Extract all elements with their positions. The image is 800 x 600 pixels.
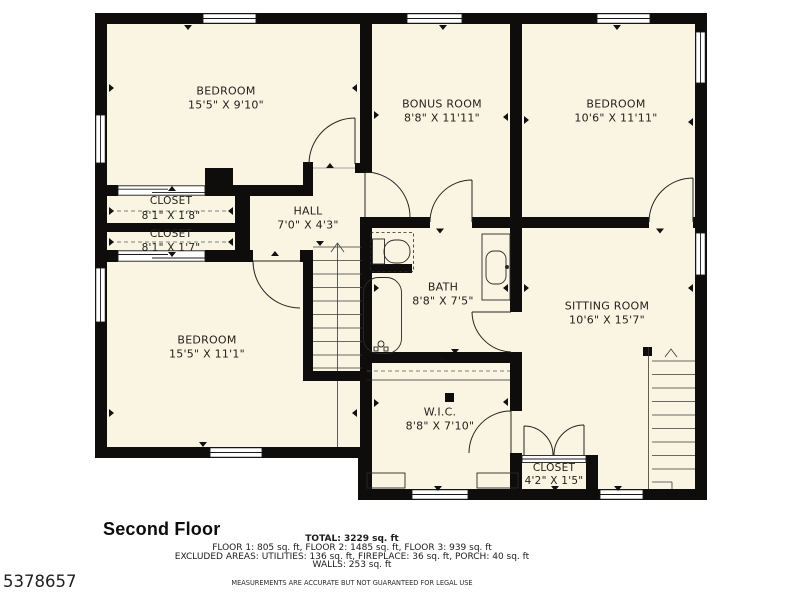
room-label-bedroom-tl: BEDROOM15'5" X 9'10" bbox=[188, 85, 264, 112]
room-label-sitting-room: SITTING ROOM10'6" X 15'7" bbox=[565, 300, 649, 327]
summary-disclaimer: MEASUREMENTS ARE ACCURATE BUT NOT GUARAN… bbox=[175, 579, 529, 588]
window bbox=[597, 14, 650, 23]
window bbox=[96, 268, 105, 322]
listing-id: 5378657 bbox=[3, 572, 77, 591]
room-label-bedroom-bl: BEDROOM15'5" X 11'1" bbox=[169, 334, 245, 361]
window bbox=[696, 32, 705, 83]
room-dims: 4'2" X 1'5" bbox=[525, 475, 584, 488]
room-dims: 10'6" X 11'11" bbox=[574, 111, 657, 125]
room-name: W.I.C. bbox=[406, 406, 475, 420]
room-dims: 10'6" X 15'7" bbox=[565, 313, 649, 327]
window bbox=[210, 448, 262, 457]
room-label-closet-2: CLOSET8'1" X 1'7" bbox=[142, 227, 201, 255]
room-name: BATH bbox=[412, 281, 473, 295]
room-name: SITTING ROOM bbox=[565, 300, 649, 314]
room-name: BONUS ROOM bbox=[402, 98, 482, 112]
room-name: BEDROOM bbox=[169, 334, 245, 348]
window bbox=[96, 115, 105, 163]
summary-walls: WALLS: 253 sq. ft bbox=[175, 561, 529, 570]
room-dims: 15'5" X 9'10" bbox=[188, 98, 264, 112]
room-label-bonus-room: BONUS ROOM8'8" X 11'11" bbox=[402, 98, 482, 125]
room-label-closet-1: CLOSET8'1" X 1'8" bbox=[142, 194, 201, 224]
window bbox=[600, 490, 643, 499]
room-name: HALL bbox=[277, 205, 338, 219]
room-name: CLOSET bbox=[525, 462, 584, 475]
room-label-bedroom-tr: BEDROOM10'6" X 11'11" bbox=[574, 98, 657, 125]
floorplan-page: BEDROOM15'5" X 9'10" BONUS ROOM8'8" X 11… bbox=[0, 0, 800, 600]
floorplan-drawing bbox=[0, 0, 800, 600]
room-name: CLOSET bbox=[142, 194, 201, 209]
room-label-bath: BATH8'8" X 7'5" bbox=[412, 281, 473, 308]
room-dims: 8'8" X 7'5" bbox=[412, 294, 473, 308]
room-name: CLOSET bbox=[142, 227, 201, 241]
room-dims: 8'1" X 1'8" bbox=[142, 209, 201, 224]
window bbox=[407, 14, 462, 23]
window bbox=[412, 490, 468, 499]
room-label-wic: W.I.C.8'8" X 7'10" bbox=[406, 406, 475, 433]
room-dims: 8'8" X 7'10" bbox=[406, 419, 475, 433]
room-label-hall: HALL7'0" X 4'3" bbox=[277, 205, 338, 232]
room-label-closet-3: CLOSET4'2" X 1'5" bbox=[525, 462, 584, 488]
window bbox=[696, 233, 705, 275]
area-summary: TOTAL: 3229 sq. ft FLOOR 1: 805 sq. ft, … bbox=[175, 535, 529, 588]
room-dims: 8'1" X 1'7" bbox=[142, 241, 201, 255]
sink-faucet bbox=[505, 265, 508, 268]
room-dims: 7'0" X 4'3" bbox=[277, 218, 338, 232]
window bbox=[203, 14, 256, 23]
room-name: BEDROOM bbox=[188, 85, 264, 99]
room-name: BEDROOM bbox=[574, 98, 657, 112]
room-dims: 8'8" X 11'11" bbox=[402, 111, 482, 125]
room-dims: 15'5" X 11'1" bbox=[169, 347, 245, 361]
